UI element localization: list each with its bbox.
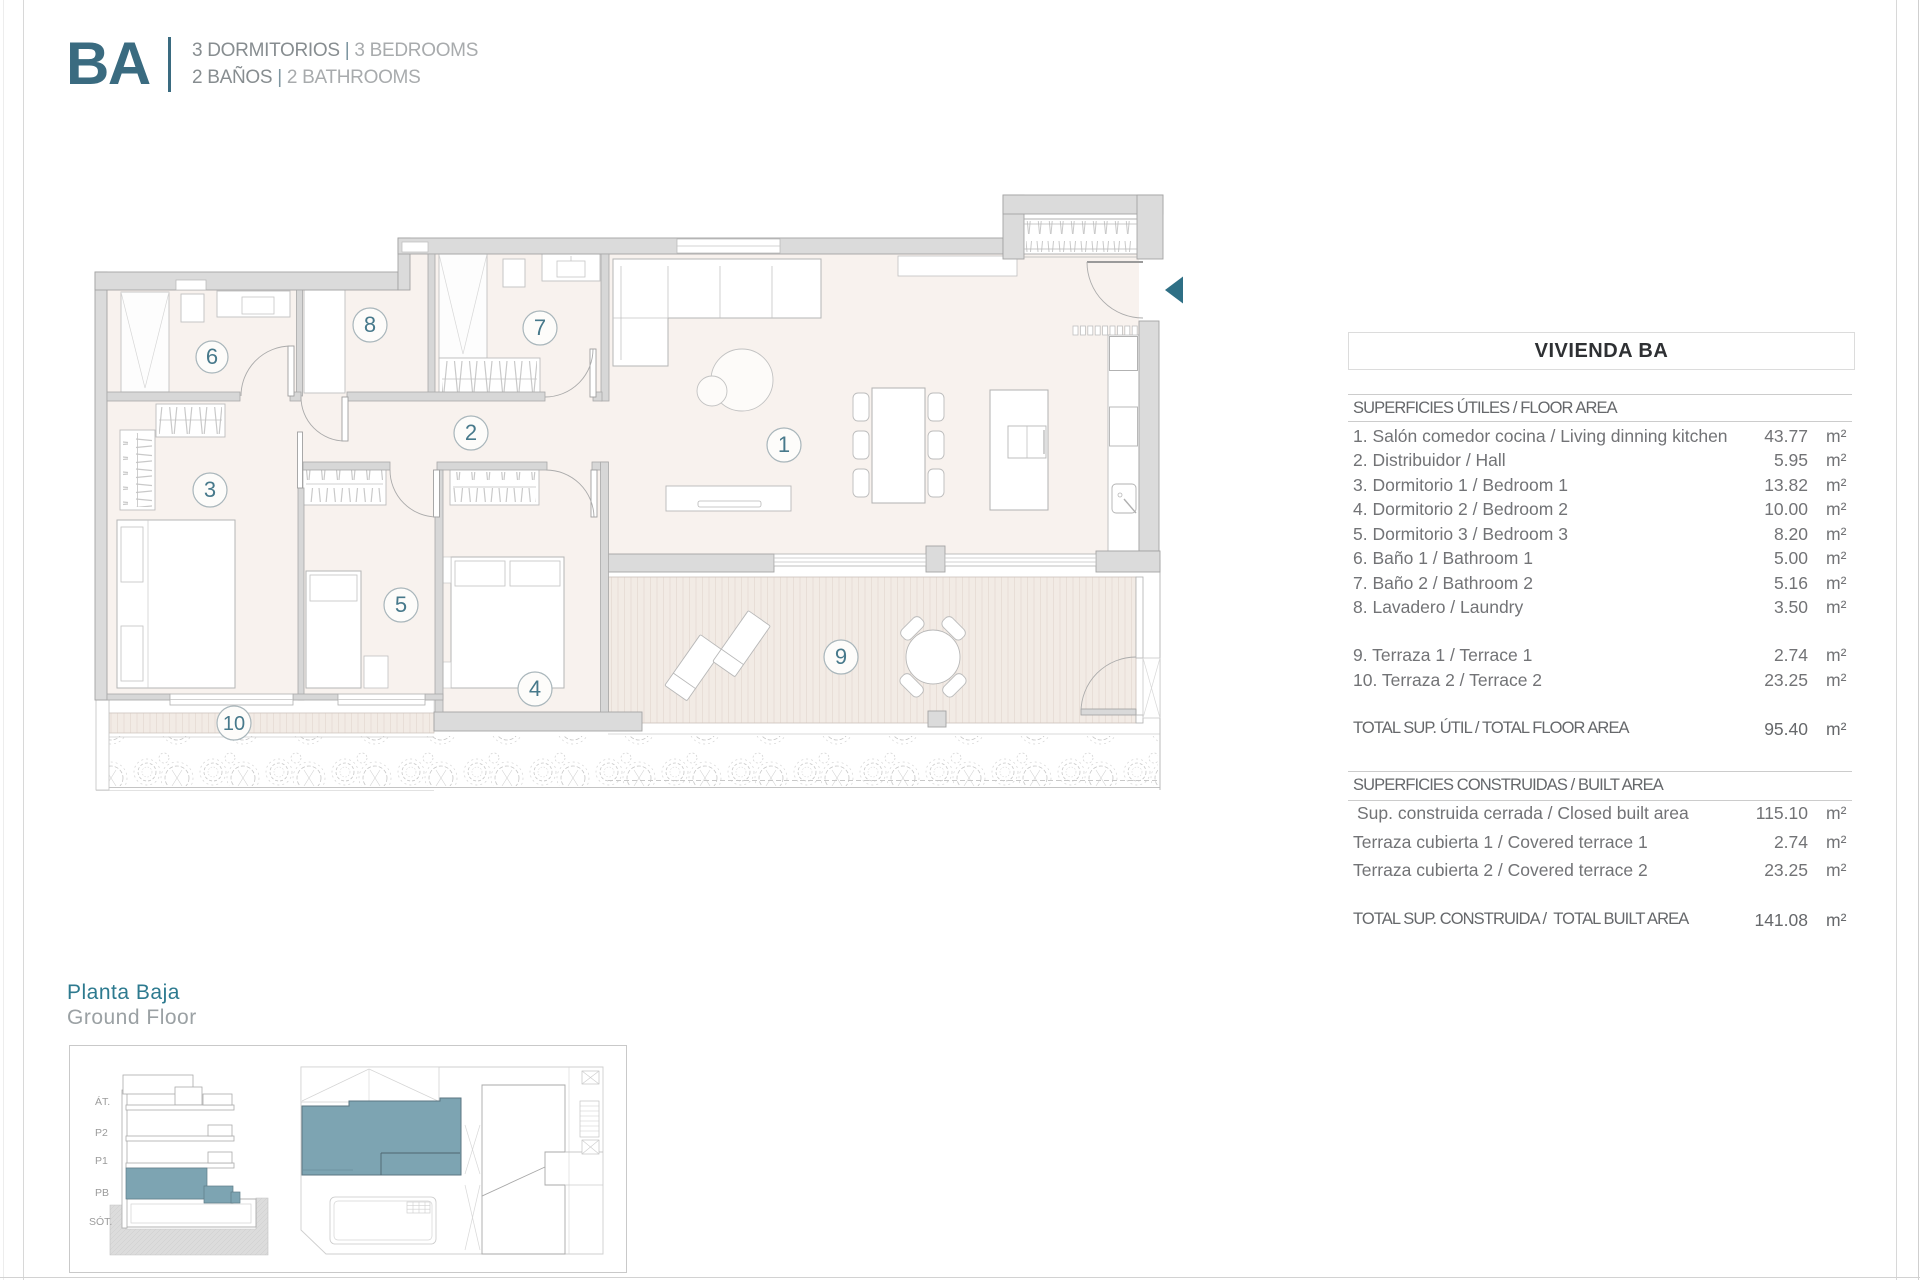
svg-text:3: 3 [204,477,216,502]
svg-text:PB: PB [95,1187,109,1199]
svg-text:4: 4 [529,676,541,701]
svg-text:7: 7 [534,315,546,340]
svg-text:6: 6 [206,344,218,369]
svg-text:P2: P2 [95,1127,108,1139]
svg-text:8: 8 [364,312,376,337]
svg-text:9: 9 [835,644,847,669]
svg-text:1: 1 [778,432,790,457]
svg-text:SÓT.: SÓT. [89,1215,112,1228]
svg-text:2: 2 [465,420,477,445]
svg-text:10: 10 [223,713,245,735]
svg-text:5: 5 [395,592,407,617]
svg-text:ÁT.: ÁT. [95,1095,110,1108]
svg-text:P1: P1 [95,1155,108,1167]
